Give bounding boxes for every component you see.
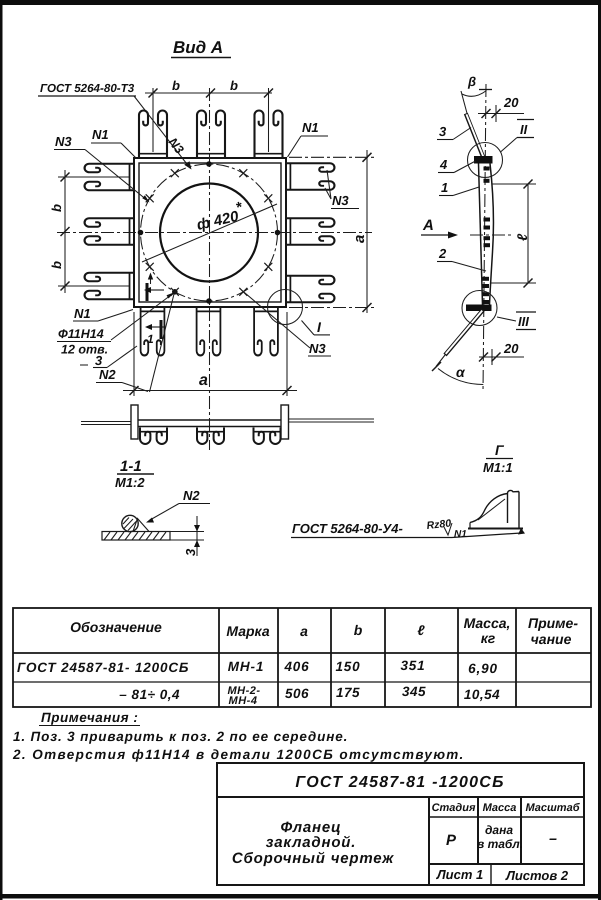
svg-text:175: 175	[336, 685, 360, 700]
svg-text:b: b	[49, 204, 64, 212]
svg-text:N1: N1	[74, 306, 91, 321]
svg-text:кг: кг	[481, 630, 496, 646]
svg-text:3: 3	[95, 353, 103, 368]
svg-text:Rz80: Rz80	[426, 517, 452, 532]
svg-text:МН-1: МН-1	[228, 659, 264, 674]
svg-text:N2: N2	[99, 367, 116, 382]
svg-text:в табл.: в табл.	[477, 837, 523, 851]
svg-text:Вид А: Вид А	[173, 38, 223, 57]
svg-text:–: –	[549, 830, 557, 846]
svg-text:М1:2: М1:2	[115, 475, 145, 490]
svg-text:2: 2	[438, 246, 447, 261]
svg-text:– 81÷ 0,4: – 81÷ 0,4	[119, 687, 180, 702]
svg-text:ℓ: ℓ	[514, 233, 530, 241]
svg-text:II: II	[520, 122, 528, 137]
svg-text:1-1: 1-1	[120, 458, 142, 475]
svg-text:чание: чание	[531, 631, 572, 647]
svg-text:1. Поз. 3 приварить к поз. 2 п: 1. Поз. 3 приварить к поз. 2 по ее серед…	[13, 729, 348, 744]
svg-text:β: β	[467, 74, 476, 89]
svg-text:α: α	[456, 364, 466, 380]
svg-text:N3: N3	[55, 134, 72, 149]
svg-text:a: a	[199, 372, 208, 389]
svg-text:N1: N1	[302, 120, 319, 135]
svg-text:20: 20	[503, 341, 519, 356]
svg-text:дана: дана	[485, 823, 513, 837]
svg-text:Приме-: Приме-	[528, 615, 578, 631]
svg-text:Сборочный чертеж: Сборочный чертеж	[232, 850, 394, 867]
svg-text:ГОСТ 5264-80-Т3: ГОСТ 5264-80-Т3	[40, 82, 135, 95]
svg-text:1: 1	[441, 180, 448, 195]
svg-text:Стадия: Стадия	[432, 802, 476, 814]
svg-text:N1: N1	[92, 127, 109, 142]
svg-text:N3: N3	[332, 193, 349, 208]
svg-text:Марка: Марка	[226, 623, 269, 639]
svg-text:a: a	[300, 623, 308, 639]
svg-text:ℓ: ℓ	[417, 622, 425, 638]
svg-text:a: a	[351, 235, 368, 243]
svg-text:ГОСТ 24587-81 -1200СБ: ГОСТ 24587-81 -1200СБ	[295, 774, 504, 791]
svg-text:150: 150	[335, 659, 360, 674]
svg-text:351: 351	[400, 658, 425, 673]
svg-text:1: 1	[147, 332, 154, 346]
svg-text:Обозначение: Обозначение	[70, 619, 162, 635]
svg-text:4: 4	[439, 157, 448, 172]
svg-text:N2: N2	[183, 488, 200, 503]
svg-text:Масштаб: Масштаб	[525, 802, 580, 814]
svg-text:N3: N3	[309, 341, 326, 356]
svg-text:6,90: 6,90	[468, 661, 498, 676]
svg-text:Лист 1: Лист 1	[436, 867, 484, 882]
svg-text:b: b	[230, 78, 238, 93]
svg-text:Г: Г	[495, 442, 505, 458]
svg-text:Ф11Н14: Ф11Н14	[58, 327, 104, 341]
svg-text:b: b	[172, 78, 180, 93]
svg-text:b: b	[49, 261, 64, 269]
svg-text:МН-4: МН-4	[229, 695, 258, 707]
svg-text:Р: Р	[446, 832, 457, 849]
svg-text:506: 506	[285, 686, 309, 701]
svg-text:10,54: 10,54	[464, 687, 500, 702]
svg-text:3: 3	[439, 124, 447, 139]
svg-text:N1: N1	[454, 529, 467, 540]
svg-text:закладной.: закладной.	[266, 834, 356, 851]
svg-text:Масса,: Масса,	[464, 615, 511, 631]
svg-text:2. Отверстия ф11Н14 в детал: 2. Отверстия ф11Н14 в детали 1200СБ отсу…	[12, 747, 465, 762]
svg-text:Масса: Масса	[483, 802, 517, 814]
svg-text:М1:1: М1:1	[483, 460, 513, 475]
svg-text:20: 20	[503, 95, 519, 110]
svg-text:ГОСТ 24587-81- 1200СБ: ГОСТ 24587-81- 1200СБ	[17, 660, 189, 675]
svg-text:406: 406	[283, 659, 309, 674]
svg-text:Примечания :: Примечания :	[41, 710, 138, 725]
svg-text:ГОСТ 5264-80-У4-: ГОСТ 5264-80-У4-	[292, 521, 403, 536]
svg-text:3: 3	[183, 548, 198, 556]
svg-text:А: А	[422, 217, 434, 234]
svg-text:Листов 2: Листов 2	[505, 868, 569, 883]
svg-text:III: III	[518, 314, 529, 329]
svg-text:b: b	[354, 622, 363, 638]
svg-text:345: 345	[402, 684, 426, 699]
